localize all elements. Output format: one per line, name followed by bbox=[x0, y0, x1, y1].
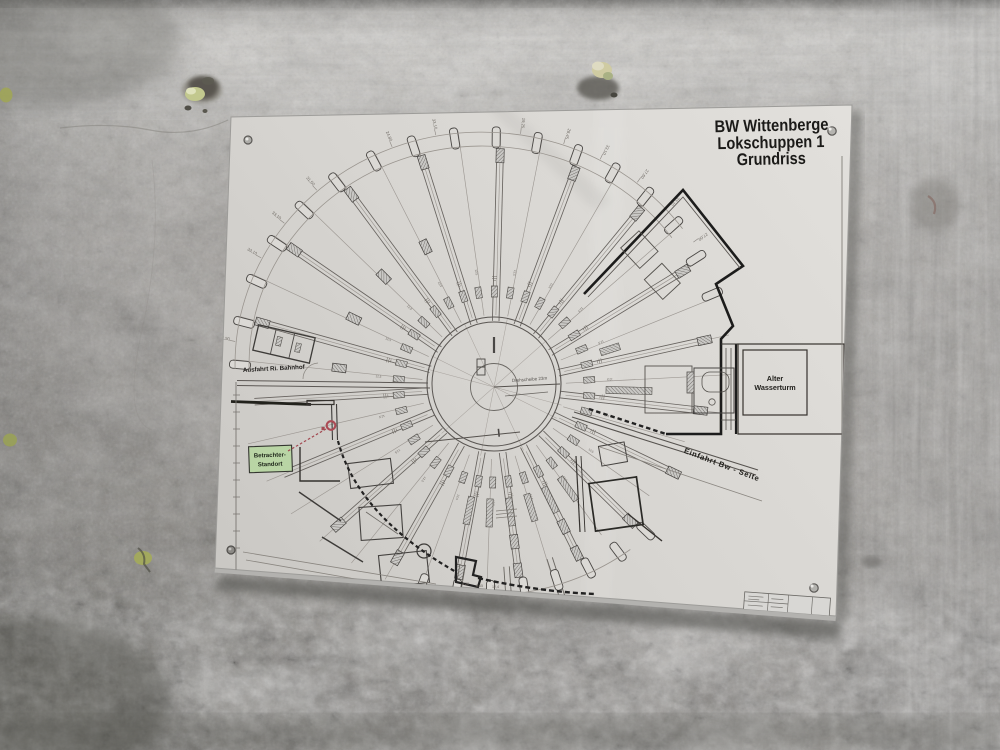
svg-text:12,4: 12,4 bbox=[492, 585, 499, 589]
svg-text:4,20: 4,20 bbox=[462, 582, 469, 586]
svg-text:8,65: 8,65 bbox=[476, 584, 483, 588]
svg-text:12,5: 12,5 bbox=[491, 500, 495, 506]
svg-text:Grundriss: Grundriss bbox=[737, 149, 806, 169]
svg-text:12,5: 12,5 bbox=[606, 377, 612, 381]
svg-text:Standort: Standort bbox=[258, 462, 283, 469]
svg-text:Wasserturm: Wasserturm bbox=[754, 383, 795, 392]
svg-text:Alter: Alter bbox=[767, 374, 784, 383]
svg-text:Betrachter-: Betrachter- bbox=[254, 452, 286, 459]
svg-text:12,5: 12,5 bbox=[375, 374, 381, 379]
